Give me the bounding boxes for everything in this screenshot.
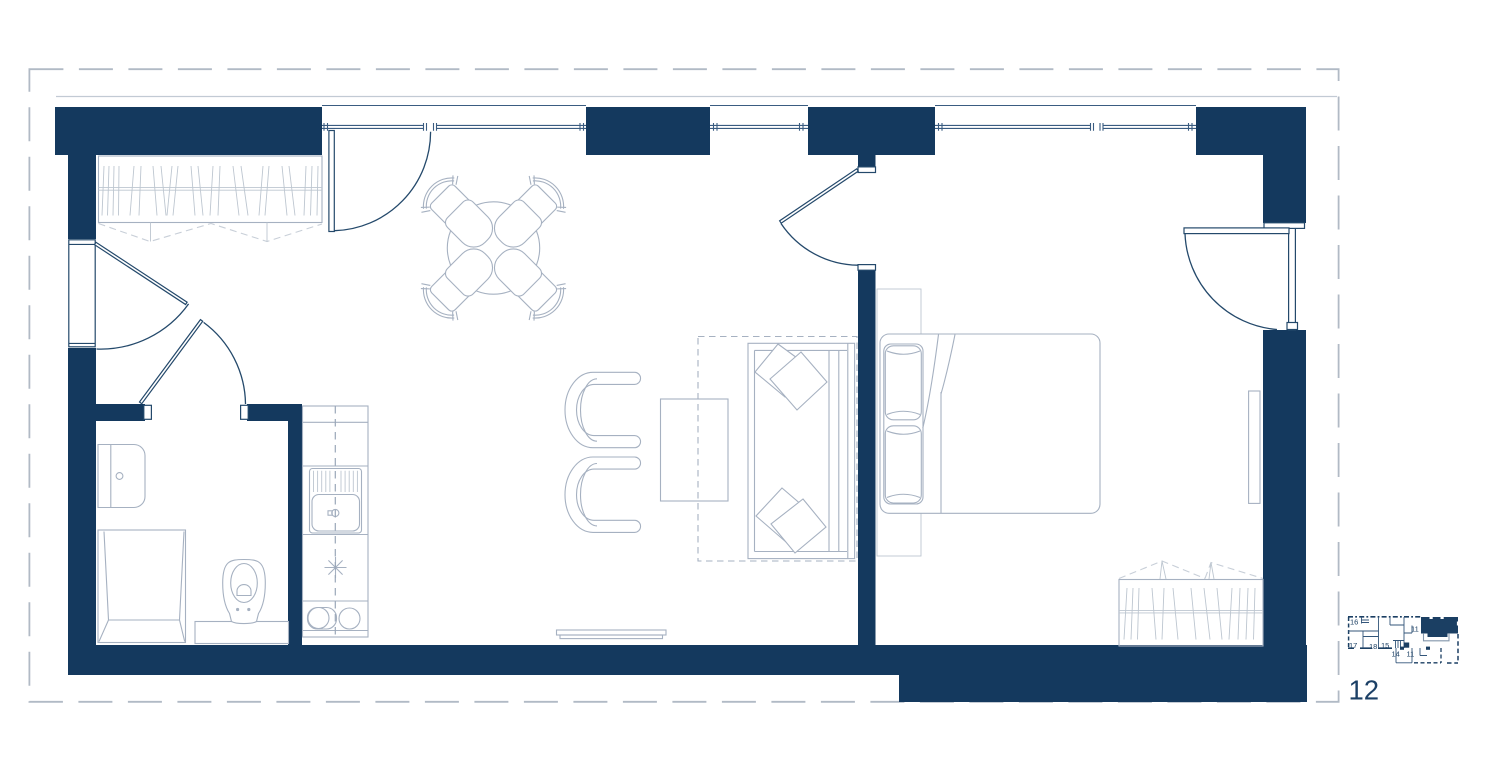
svg-text:11: 11	[1411, 625, 1419, 634]
svg-text:15: 15	[1381, 641, 1389, 650]
svg-text:17: 17	[1349, 641, 1357, 650]
svg-text:11: 11	[1407, 650, 1415, 659]
svg-text:18: 18	[1369, 642, 1377, 651]
svg-text:16: 16	[1350, 618, 1358, 627]
svg-text:14: 14	[1392, 650, 1400, 659]
svg-text:12: 12	[1349, 675, 1380, 706]
